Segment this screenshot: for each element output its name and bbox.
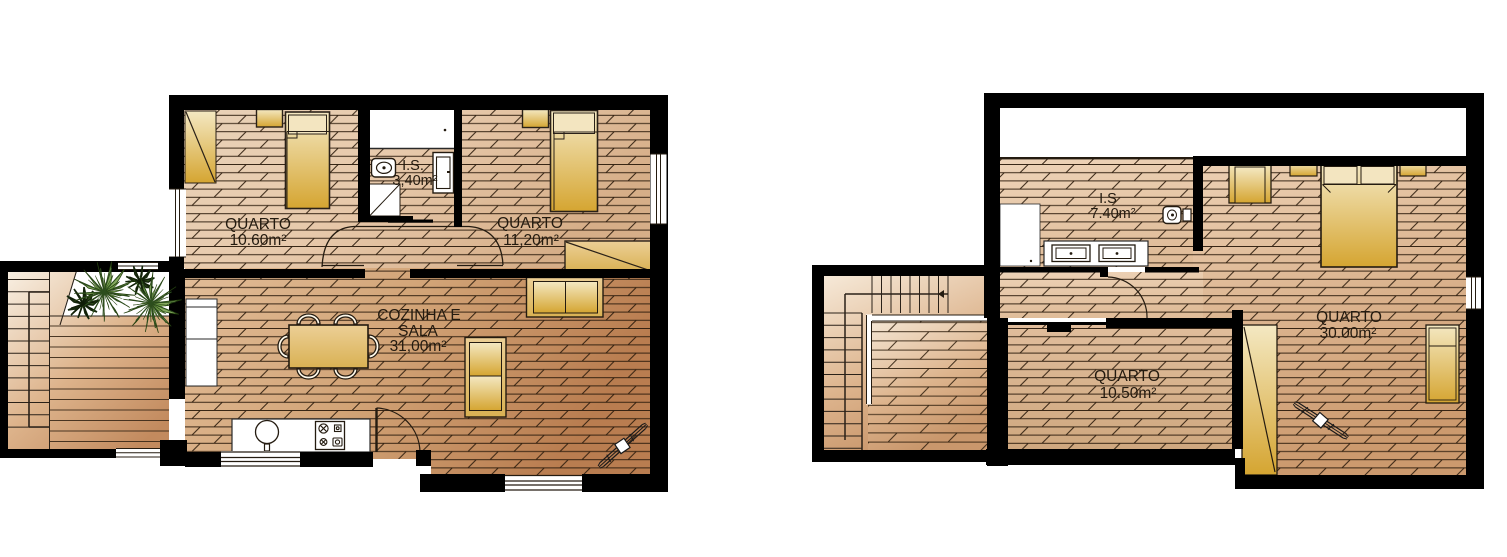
- svg-text:I.S.: I.S.: [402, 158, 424, 174]
- svg-text:30.00m²: 30.00m²: [1320, 325, 1377, 342]
- svg-text:7.40m²: 7.40m²: [1090, 206, 1135, 222]
- svg-text:QUARTO: QUARTO: [1316, 309, 1382, 326]
- svg-text:31,00m²: 31,00m²: [390, 338, 447, 355]
- svg-text:10.50m²: 10.50m²: [1100, 385, 1157, 402]
- svg-text:QUARTO: QUARTO: [1094, 368, 1160, 385]
- svg-text:QUARTO: QUARTO: [225, 216, 291, 233]
- svg-text:3,40m²: 3,40m²: [392, 173, 437, 189]
- svg-text:10.60m²: 10.60m²: [230, 232, 287, 249]
- svg-text:I.S: I.S: [1099, 191, 1117, 207]
- svg-text:COZINHA E: COZINHA E: [377, 307, 461, 324]
- svg-text:11,20m²: 11,20m²: [503, 232, 559, 249]
- svg-text:QUARTO: QUARTO: [497, 215, 563, 232]
